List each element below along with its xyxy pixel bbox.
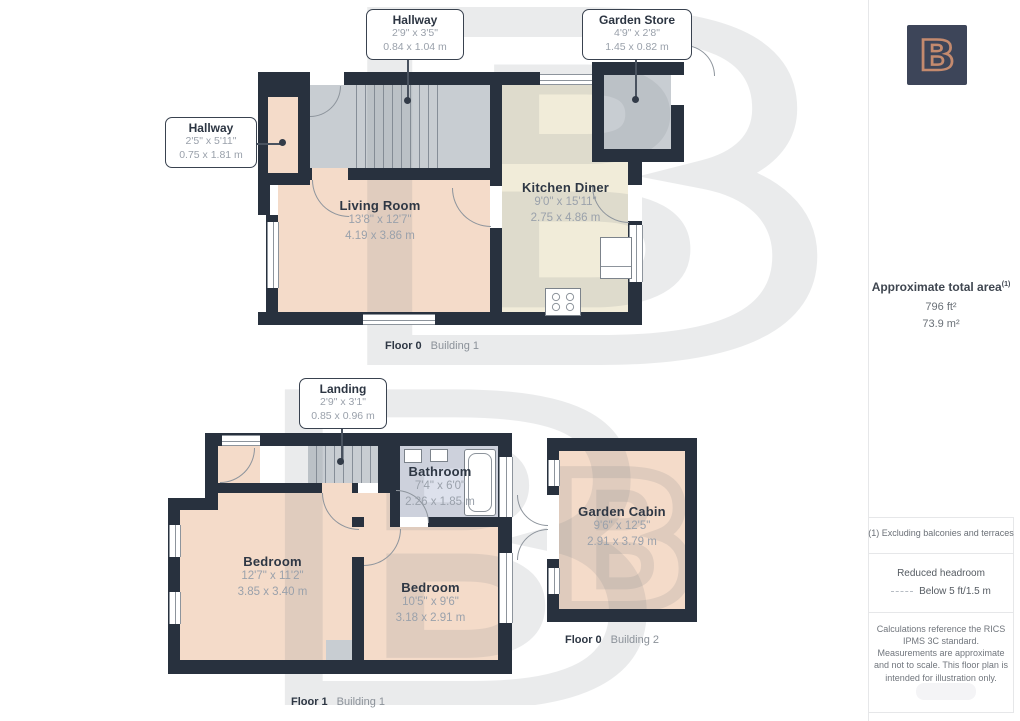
total-area-imperial: 796 ft² bbox=[868, 301, 1014, 313]
room-label-bathroom: Bathroom 7'4" x 6'0" 2.26 x 1.85 m bbox=[375, 464, 505, 510]
toilet bbox=[404, 449, 422, 463]
room-label-bedroom-right: Bedroom 10'5" x 9'6" 3.18 x 2.91 m bbox=[358, 580, 503, 626]
garden-store-wall bbox=[592, 149, 684, 162]
door-opening bbox=[671, 75, 684, 105]
total-area-metric: 73.9 m² bbox=[868, 318, 1014, 330]
stove bbox=[545, 288, 581, 316]
dashed-line-icon bbox=[891, 591, 913, 592]
brand-logo: B bbox=[907, 25, 967, 85]
sidebar-divider bbox=[1013, 517, 1014, 713]
kitchen-counter bbox=[600, 237, 632, 279]
callout-dot bbox=[279, 139, 286, 146]
chimney bbox=[326, 640, 352, 660]
callout-line bbox=[635, 59, 637, 99]
callout-line bbox=[255, 143, 281, 145]
callout-line bbox=[407, 59, 409, 100]
door-opening bbox=[352, 527, 364, 557]
door-swing bbox=[517, 495, 548, 526]
callout-hallway-top: Hallway 2'9" x 3'5" 0.84 x 1.04 m bbox=[366, 9, 464, 60]
door-opening bbox=[312, 168, 348, 180]
caption-floor0-building2: Floor 0Building 2 bbox=[512, 634, 712, 646]
wall-segment bbox=[168, 498, 213, 510]
room-label-garden-cabin: Garden Cabin 9'6" x 12'5" 2.91 x 3.79 m bbox=[548, 504, 696, 550]
footnote-marker: (1) bbox=[1002, 281, 1011, 288]
total-area-block: Approximate total area(1) 796 ft² 73.9 m… bbox=[868, 280, 1014, 330]
sidebar-divider bbox=[869, 612, 1014, 613]
wall-segment bbox=[168, 660, 512, 674]
garden-store-wall bbox=[592, 75, 604, 149]
reduced-headroom-legend: Below 5 ft/1.5 m bbox=[868, 586, 1014, 597]
callout-line bbox=[341, 428, 343, 461]
window bbox=[548, 460, 560, 486]
callout-garden-store: Garden Store 4'9" x 2'8" 1.45 x 0.82 m bbox=[582, 9, 692, 60]
reduced-headroom-title: Reduced headroom bbox=[868, 568, 1014, 579]
wall-segment bbox=[547, 438, 697, 451]
callout-dot bbox=[404, 97, 411, 104]
svg-text:B: B bbox=[919, 31, 956, 80]
sink bbox=[430, 449, 448, 462]
sidebar-divider bbox=[869, 517, 1014, 518]
sidebar-divider bbox=[869, 553, 1014, 554]
callout-hallway-left: Hallway 2'5" x 5'11" 0.75 x 1.81 m bbox=[165, 117, 257, 168]
staircase bbox=[308, 446, 378, 483]
room-label-kitchen-diner: Kitchen Diner 9'0" x 15'11" 2.75 x 4.86 … bbox=[488, 180, 643, 226]
wall-segment bbox=[258, 312, 642, 325]
hallway-vestibule-floor bbox=[268, 97, 298, 173]
callout-landing: Landing 2'9" x 3'1" 0.85 x 0.96 m bbox=[299, 378, 387, 429]
total-area-title: Approximate total area(1) bbox=[868, 280, 1014, 294]
door-opening bbox=[310, 72, 344, 85]
caption-floor0-building1: Floor 0Building 1 bbox=[332, 340, 532, 352]
door-opening bbox=[322, 483, 352, 493]
door-swing bbox=[517, 529, 548, 560]
floorplan-page: B B B bbox=[0, 0, 1020, 721]
window bbox=[363, 314, 435, 325]
staircase bbox=[348, 85, 438, 168]
disclaimer: Calculations reference the RICS IPMS 3C … bbox=[874, 623, 1008, 684]
caption-floor1-building1: Floor 1Building 1 bbox=[238, 696, 438, 708]
garden-store-floor bbox=[604, 75, 671, 149]
window bbox=[548, 568, 560, 594]
area-footnote: (1) Excluding balconies and terraces bbox=[868, 528, 1014, 538]
window bbox=[540, 74, 592, 85]
window bbox=[169, 592, 181, 624]
wall-segment bbox=[547, 609, 697, 622]
room-label-living-room: Living Room 13'8" x 12'7" 4.19 x 3.86 m bbox=[295, 198, 465, 244]
footer-logo-watermark bbox=[916, 683, 976, 700]
room-label-bedroom-left: Bedroom 12'7" x 11'2" 3.85 x 3.40 m bbox=[200, 554, 345, 600]
window bbox=[222, 435, 260, 446]
window bbox=[267, 222, 279, 288]
window bbox=[169, 525, 181, 557]
callout-dot bbox=[632, 96, 639, 103]
callout-dot bbox=[337, 458, 344, 465]
stair-landing bbox=[260, 446, 308, 483]
sidebar-divider bbox=[869, 712, 1014, 713]
